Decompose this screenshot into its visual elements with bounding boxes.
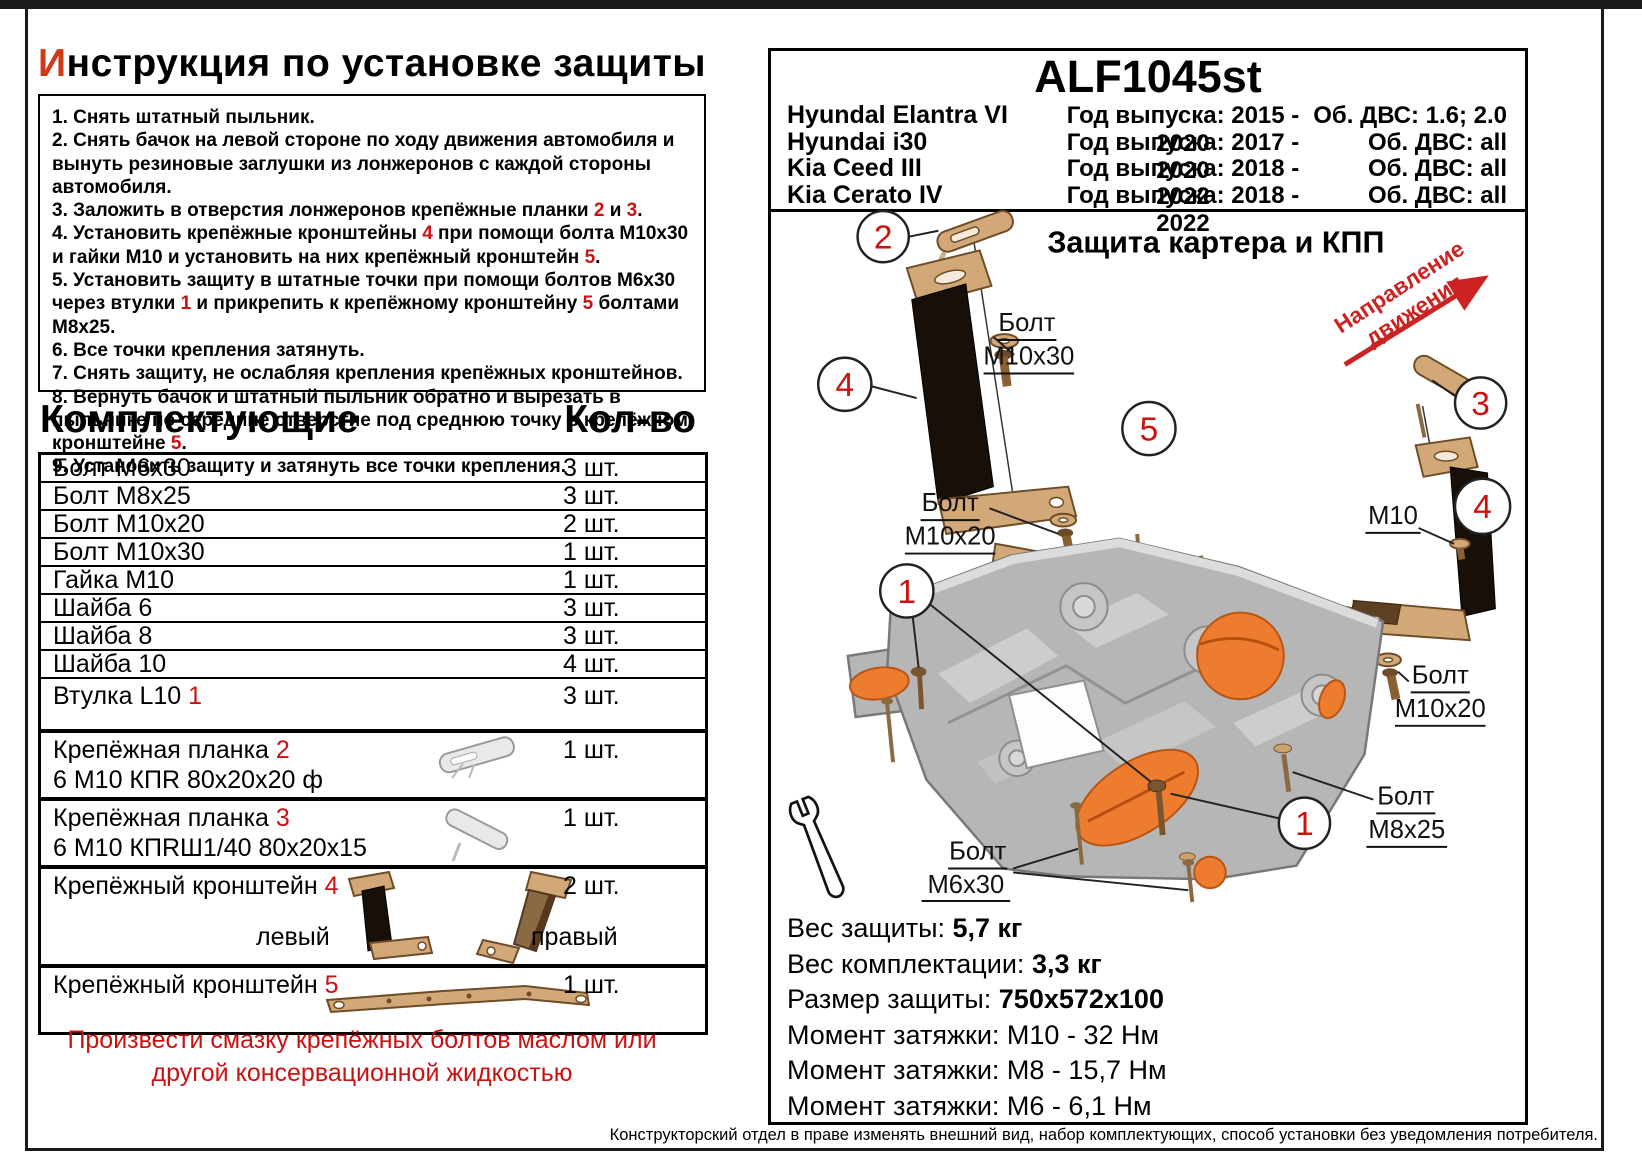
model-engine: Об. ДВС: all xyxy=(1368,129,1507,157)
page-title: Инструкция по установке защиты xyxy=(38,42,706,86)
assembly-diagram: Защита картера и КПП Направление движени… xyxy=(771,208,1519,908)
part-name: Болт М10х30 xyxy=(53,539,555,565)
part-code: ALF1045st xyxy=(771,53,1525,101)
label-bolt-m10x20-right: Болт М10х20 xyxy=(1395,661,1486,725)
title-rest: нструкция по установке защиты xyxy=(67,42,707,85)
bolt-bushing-left xyxy=(920,676,922,709)
part-row: Крепёжная планка 26 М10 КПR 80х20х20 ф 1… xyxy=(41,729,705,797)
part-qty: 3 шт. xyxy=(563,455,698,481)
part-row: Втулка L10 13 шт. xyxy=(41,677,705,729)
right-panel: ALF1045st Hyundal Elantra VIГод выпуска:… xyxy=(768,48,1528,1125)
parts-table: Болт М6х303 шт.Болт М8х253 шт.Болт М10х2… xyxy=(38,452,708,1035)
instruction-sheet: Инструкция по установке защиты 1. Снять … xyxy=(0,0,1642,1168)
part-qty: 1 шт. xyxy=(563,539,698,565)
wrench-icon xyxy=(787,795,851,901)
callout-4-right: 4 xyxy=(1455,479,1510,536)
spec-line: Момент затяжки: М8 - 15,7 Нм xyxy=(787,1053,1167,1089)
part-row: Крепёжная планка 36 М10 КПRШ1/40 80х20х1… xyxy=(41,797,705,865)
svg-text:Болт: Болт xyxy=(949,838,1006,866)
svg-text:М10х20: М10х20 xyxy=(1395,695,1486,723)
part-qty: 4 шт. xyxy=(563,651,698,677)
part-qty: 2 шт. xyxy=(563,511,698,537)
page-frame-right xyxy=(1601,9,1604,1151)
part-name: Болт М6х30 xyxy=(53,455,555,481)
svg-text:М10х30: М10х30 xyxy=(983,343,1074,371)
part-qty: 1 шт. xyxy=(563,968,698,1000)
bracket-left-label: левый xyxy=(256,923,330,952)
parts-header: Комплектующие Кол-во xyxy=(38,398,702,446)
part-name: Гайка М10 xyxy=(53,567,555,593)
instruction-item: 4. Установить крепёжные кронштейны 4 при… xyxy=(52,222,692,269)
model-engine: Об. ДВС: all xyxy=(1368,182,1507,210)
spec-line: Размер защиты: 750х572х100 xyxy=(787,982,1167,1018)
svg-text:Болт: Болт xyxy=(922,489,979,517)
model-header: ALF1045st Hyundal Elantra VIГод выпуска:… xyxy=(771,51,1525,212)
svg-text:Болт: Болт xyxy=(1412,661,1469,689)
model-engine: Об. ДВС: all xyxy=(1368,155,1507,183)
part-name: Шайба 10 xyxy=(53,651,555,677)
instruction-item: 6. Все точки крепления затянуть. xyxy=(52,339,692,362)
part-qty: 1 шт. xyxy=(563,801,698,833)
model-name: Kia Ceed III xyxy=(787,154,922,183)
part-name: Шайба 8 xyxy=(53,623,555,649)
part-qty: 1 шт. xyxy=(563,733,698,765)
part-qty: 2 шт. xyxy=(563,869,698,901)
part-row: Болт М10х301 шт. xyxy=(41,537,705,565)
part-name: Болт М10х20 xyxy=(53,511,555,537)
part-qty: 3 шт. xyxy=(563,679,698,711)
spec-line: Вес комплектации: 3,3 кг xyxy=(787,947,1167,983)
plank-2-image xyxy=(423,733,533,779)
spec-line: Момент затяжки: М10 - 32 Нм xyxy=(787,1018,1167,1054)
svg-text:5: 5 xyxy=(1140,411,1159,448)
instruction-item: 1. Снять штатный пыльник. xyxy=(52,106,692,129)
callout-2: 2 xyxy=(858,211,939,262)
page-frame-top xyxy=(0,0,1642,9)
instruction-item: 5. Установить защиту в штатные точки при… xyxy=(52,269,692,339)
label-bolt-m10x30: Болт М10х30 xyxy=(983,309,1074,373)
instruction-item: 7. Снять защиту, не ослабляя крепления к… xyxy=(52,362,692,385)
page-frame-bottom xyxy=(25,1148,1604,1151)
mount-bracket-4-left xyxy=(912,284,994,504)
part-row: Болт М8х253 шт. xyxy=(41,481,705,509)
svg-text:М8х25: М8х25 xyxy=(1368,816,1445,844)
svg-text:4: 4 xyxy=(836,367,855,404)
model-row: Hyundai i30Год выпуска: 2017 - 2020Об. Д… xyxy=(785,128,1511,155)
bracket-right-label: правый xyxy=(531,923,618,952)
svg-text:М6х30: М6х30 xyxy=(927,871,1004,899)
part-qty: 1 шт. xyxy=(563,567,698,593)
specs-list: Вес защиты: 5,7 кгВес комплектации: 3,3 … xyxy=(787,911,1167,1124)
model-list: Hyundal Elantra VIГод выпуска: 2015 - 20… xyxy=(771,101,1525,207)
svg-text:Болт: Болт xyxy=(1377,783,1434,811)
part-row: Болт М6х303 шт. xyxy=(41,455,705,481)
bolt-bushing-center xyxy=(1159,792,1163,835)
rubber-pad-right xyxy=(1197,613,1284,700)
svg-text:3: 3 xyxy=(1471,386,1490,423)
model-name: Hyundai i30 xyxy=(787,128,927,157)
part-name: Болт М8х25 xyxy=(53,483,555,509)
installation-instructions: 1. Снять штатный пыльник.2. Снять бачок … xyxy=(38,94,706,392)
svg-text:Болт: Болт xyxy=(998,309,1055,337)
svg-text:2: 2 xyxy=(874,219,893,256)
spec-line: Вес защиты: 5,7 кг xyxy=(787,911,1167,947)
part-row: Болт М10х202 шт. xyxy=(41,509,705,537)
diagram-title: Защита картера и КПП xyxy=(1047,225,1384,259)
bracket-5-image xyxy=(323,980,595,1020)
part-qty: 3 шт. xyxy=(563,483,698,509)
svg-text:М10х20: М10х20 xyxy=(905,523,996,551)
part-qty: 3 шт. xyxy=(563,595,698,621)
parts-header-qty: Кол-во xyxy=(564,398,696,442)
lubrication-note: Произвести смазку крепёжных болтов масло… xyxy=(30,1024,694,1090)
title-first-letter: И xyxy=(38,42,67,85)
model-name: Hyundal Elantra VI xyxy=(787,101,1008,130)
svg-text:1: 1 xyxy=(898,574,917,611)
instruction-item: 2. Снять бачок на левой стороне по ходу … xyxy=(52,129,692,199)
label-m10: М10 xyxy=(1365,502,1454,544)
part-name: Втулка L10 1 xyxy=(53,679,555,711)
model-name: Kia Cerato IV xyxy=(787,181,943,210)
model-row: Kia Cerato IVГод выпуска: 2018 - 2022Об.… xyxy=(785,181,1511,208)
rubber-pad-corner xyxy=(1194,857,1225,888)
part-row: Шайба 83 шт. xyxy=(41,621,705,649)
part-row: Гайка М101 шт. xyxy=(41,565,705,593)
svg-text:4: 4 xyxy=(1473,489,1492,526)
callout-5: 5 xyxy=(1122,402,1175,455)
svg-text:М10: М10 xyxy=(1368,502,1418,530)
page-frame-left xyxy=(25,9,28,1151)
part-row: Крепёжный кронштейн 5 1 шт. xyxy=(41,964,705,1032)
part-qty: 3 шт. xyxy=(563,623,698,649)
part-name: Шайба 6 xyxy=(53,595,555,621)
model-row: Hyundal Elantra VIГод выпуска: 2015 - 20… xyxy=(785,101,1511,128)
instruction-item: 3. Заложить в отверстия лонжеронов крепё… xyxy=(52,199,692,222)
part-row: Шайба 104 шт. xyxy=(41,649,705,677)
model-row: Kia Ceed IIIГод выпуска: 2018 - 2022Об. … xyxy=(785,154,1511,181)
parts-header-name: Комплектующие xyxy=(40,398,359,442)
plank-3-image xyxy=(429,803,525,863)
model-engine: Об. ДВС: 1.6; 2.0 xyxy=(1313,102,1507,130)
disclaimer: Конструкторский отдел в праве изменять в… xyxy=(610,1126,1598,1145)
part-row: Шайба 63 шт. xyxy=(41,593,705,621)
spec-line: Момент затяжки: М6 - 6,1 Нм xyxy=(787,1089,1167,1125)
svg-text:1: 1 xyxy=(1295,806,1314,843)
part-row: Крепёжный кронштейн 4 левыйправый2 шт. xyxy=(41,865,705,964)
callout-4-left: 4 xyxy=(818,358,916,411)
